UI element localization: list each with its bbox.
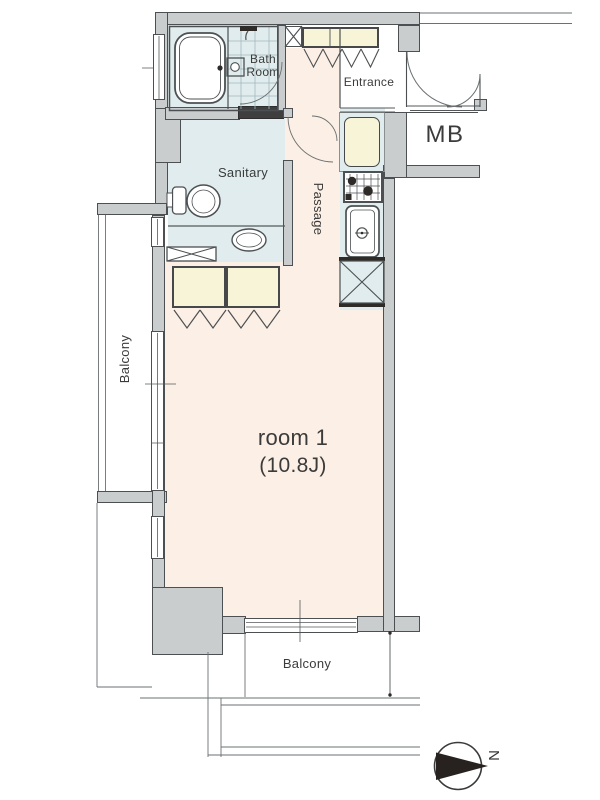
compass-north-label: N <box>485 750 502 761</box>
wall-segment <box>222 616 246 634</box>
wall-segment <box>384 112 407 178</box>
compass-circle <box>435 743 482 790</box>
meter-box-label: MB <box>415 122 475 149</box>
closet-right <box>226 266 280 308</box>
shoe-closet <box>302 27 379 48</box>
closet-left <box>172 266 226 308</box>
wall-segment <box>165 107 240 120</box>
wall-segment <box>283 108 293 118</box>
balcony-sliding-window <box>151 331 164 491</box>
door-pillar <box>474 99 487 111</box>
compass: N <box>435 743 503 790</box>
bath-room-label: Bath Room <box>233 53 293 80</box>
passage-label: Passage <box>309 169 325 249</box>
structural-block <box>152 587 223 655</box>
balcony-bottom-label: Balcony <box>257 657 357 672</box>
floor-plan: N Bath Room Entrance MB Sanitary Passage… <box>0 0 600 800</box>
balcony-railing <box>99 215 106 491</box>
entrance-door-swing <box>407 52 480 107</box>
north-arrow-icon <box>436 753 488 781</box>
room1-name-label: room 1 <box>218 426 368 451</box>
bath-window <box>153 34 165 100</box>
sanitary-window <box>151 217 164 247</box>
balcony-left-label: Balcony <box>118 319 134 399</box>
wall-segment <box>155 12 420 25</box>
sanitary-floor <box>168 118 285 266</box>
sanitary-label: Sanitary <box>183 166 303 181</box>
wall-segment <box>383 178 395 632</box>
room1-size-label: (10.8J) <box>218 454 368 478</box>
bottom-sliding-window <box>244 618 358 633</box>
wall-segment <box>398 25 420 52</box>
side-window <box>151 516 164 559</box>
pipe-space <box>285 26 302 47</box>
entrance-label: Entrance <box>338 76 400 89</box>
wall-segment <box>97 203 167 215</box>
storage-box <box>344 117 380 167</box>
